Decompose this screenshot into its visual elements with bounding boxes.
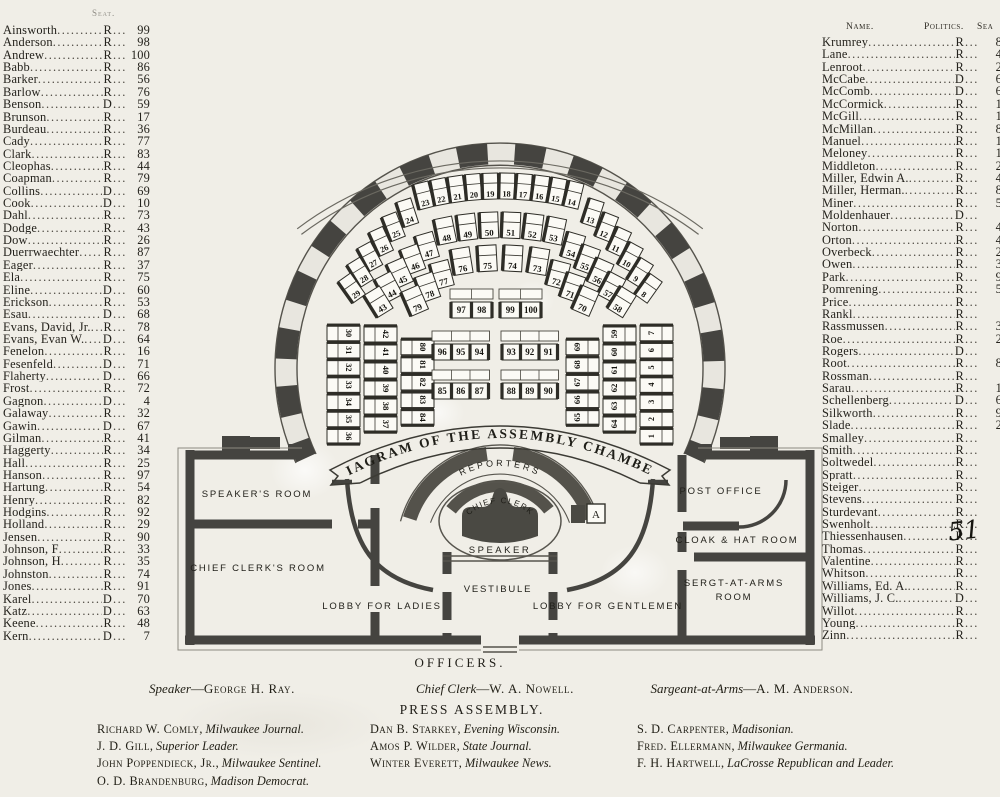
seat-divider [364, 324, 397, 327]
dot-leader [30, 284, 102, 296]
member-row: CadyR77 [3, 135, 150, 147]
member-seat: 91 [126, 580, 150, 592]
seat-divider [401, 338, 434, 341]
member-party: R [955, 246, 965, 258]
dot-leader [965, 333, 978, 345]
member-name: Holland [3, 518, 44, 530]
seat-67: 67 [566, 373, 599, 390]
member-row: ElaR75 [3, 271, 150, 283]
member-seat: 8 [978, 36, 1000, 48]
member-row: DahlR73 [3, 209, 150, 221]
member-row: RootR8 [822, 357, 1000, 369]
room-label-sergt-room-line1: SERGT-AT-ARMS [684, 578, 784, 589]
seat-box [327, 377, 360, 393]
seat-number: 96 [438, 347, 448, 357]
member-row: Williams, Ed. A.R [822, 580, 1000, 592]
member-party: R [955, 357, 965, 369]
member-seat: 3 [978, 258, 1000, 270]
member-name: Park [822, 271, 846, 283]
officer-role: Sargeant-at-Arms [650, 681, 743, 696]
member-name: Anderson [3, 36, 53, 48]
press-name: Richard W. Comly [97, 722, 199, 736]
member-name: Dodge [3, 222, 37, 234]
seat-box [603, 362, 636, 378]
member-row: AndersonR98 [3, 36, 150, 48]
member-row: KatzD63 [3, 605, 150, 617]
dot-leader [872, 246, 955, 258]
member-name: Sarau [822, 382, 851, 394]
member-party: R [955, 333, 965, 345]
dot-leader [31, 197, 102, 209]
member-seat: 48 [126, 617, 150, 629]
dot-leader [885, 320, 955, 332]
seat-divider [450, 344, 453, 360]
member-row: DuerrwaechterR87 [3, 246, 150, 258]
member-party: R [103, 568, 113, 580]
member-name: Root [822, 357, 847, 369]
seat-50: 50 [477, 212, 498, 239]
seat-divider [556, 383, 559, 399]
member-row: ValentineR [822, 555, 1000, 567]
room-label-cloak-hat-room: CLOAK & HAT ROOM [676, 535, 799, 546]
member-seat: 56 [126, 73, 150, 85]
member-row: SoltwedelR [822, 456, 1000, 468]
member-name: Lenroot [822, 61, 863, 73]
seat-84: 84 [401, 408, 434, 427]
dot-leader [40, 185, 102, 197]
member-row: MeloneyR1 [822, 147, 1000, 159]
dot-leader [113, 284, 126, 296]
seat-85: 85 [431, 383, 451, 399]
member-name: Young [822, 617, 856, 629]
dot-leader [965, 493, 978, 505]
member-name: Ainsworth [3, 24, 57, 36]
member-row: GagnonD4 [3, 395, 150, 407]
seat-7: 7 [640, 324, 673, 341]
member-name: McCormick [822, 98, 884, 110]
member-row: SmithR [822, 444, 1000, 456]
dot-leader [28, 234, 103, 246]
member-party: R [103, 469, 113, 481]
member-seat: 54 [126, 481, 150, 493]
press-paper: LaCrosse Republican and Leader. [727, 756, 894, 770]
seat-number: 17 [518, 190, 527, 200]
dot-leader [864, 432, 955, 444]
member-seat: 64 [126, 333, 150, 345]
dot-leader [41, 98, 101, 110]
member-name: Moldenhauer [822, 209, 890, 221]
dot-leader [873, 407, 955, 419]
member-seat: 3 [978, 320, 1000, 332]
dot-leader [868, 36, 954, 48]
dot-leader [61, 555, 103, 567]
member-party: R [955, 320, 965, 332]
dot-leader [25, 457, 102, 469]
officer-name: W. A. Nowell. [489, 681, 574, 696]
member-row: EricksonR53 [3, 296, 150, 308]
dot-leader [870, 85, 954, 97]
dot-leader [113, 234, 126, 246]
member-party: R [103, 172, 113, 184]
member-name: Thomas [822, 543, 863, 555]
seat-37: 37 [364, 414, 397, 433]
member-name: Fenelon [3, 345, 44, 357]
dot-leader [884, 98, 955, 110]
member-row: Evans, David, Jr.R78 [3, 321, 150, 333]
member-party: R [103, 617, 113, 629]
right-header-name: Name. [846, 22, 874, 32]
member-name: Jensen [3, 531, 37, 543]
seat-box [566, 339, 599, 355]
member-party: R [955, 370, 965, 382]
seat-divider [640, 442, 673, 445]
seat-box [364, 326, 397, 342]
seat-34: 34 [327, 392, 360, 409]
seat-number: 22 [436, 194, 446, 204]
seat-32: 32 [327, 358, 360, 375]
member-party: R [955, 629, 965, 641]
dot-leader [856, 617, 955, 629]
dot-leader [965, 345, 978, 357]
member-party: R [103, 148, 113, 160]
member-name: Smalley [822, 432, 864, 444]
member-row: Evans, Evan W.D64 [3, 333, 150, 345]
seat-box [640, 428, 673, 444]
member-party: D [954, 85, 965, 97]
member-name: Sturdevant [822, 506, 878, 518]
seat-box [401, 357, 434, 373]
officer-role: Speaker [149, 681, 191, 696]
press-name: Dan B. Starkey [370, 722, 458, 736]
member-seat: 2 [978, 333, 1000, 345]
seat-69: 69 [566, 338, 599, 355]
member-party: D [102, 284, 113, 296]
member-row: KarelD70 [3, 593, 150, 605]
member-row: PriceR [822, 296, 1000, 308]
dot-leader [113, 123, 126, 135]
seat-number: 64 [609, 419, 619, 428]
member-name: Andrew [3, 49, 44, 61]
dot-leader [965, 617, 978, 629]
right-header-politics: Politics. [924, 22, 964, 32]
left-list-header-partial: Seat. [92, 8, 115, 18]
member-party: R [955, 382, 965, 394]
member-party: R [955, 271, 965, 283]
seat-87: 87 [468, 383, 490, 399]
center-block-row-3: 858687888990 [431, 370, 559, 399]
seat-number: 30 [344, 329, 353, 337]
seat-box [327, 394, 360, 410]
seat-divider [537, 344, 540, 360]
member-party: R [955, 580, 965, 592]
member-row: EsauD68 [3, 308, 150, 320]
member-name: Steiger [822, 481, 859, 493]
seat-number: 4 [647, 383, 656, 387]
member-name: Cook [3, 197, 31, 209]
member-name: Hanson [3, 469, 42, 481]
member-name: Dahl [3, 209, 28, 221]
member-seat: 78 [126, 321, 150, 333]
seat-divider [449, 302, 452, 318]
member-party: D [954, 345, 965, 357]
member-name: Katz [3, 605, 27, 617]
dot-leader [113, 321, 126, 333]
member-seat: 36 [126, 123, 150, 135]
dot-leader [113, 457, 126, 469]
dot-leader [965, 592, 978, 604]
seat-divider [566, 424, 599, 427]
member-row: BabbR86 [3, 61, 150, 73]
member-party: R [955, 234, 965, 246]
member-row: KernD7 [3, 630, 150, 642]
member-name: Overbeck [822, 246, 872, 258]
dot-leader [965, 481, 978, 493]
member-name: Pomrening [822, 283, 878, 295]
seat-box [327, 325, 360, 341]
seat-box [640, 325, 673, 341]
seat-62: 62 [603, 378, 636, 396]
member-party: R [103, 61, 113, 73]
seat-divider [364, 396, 397, 399]
seat-number: 3 [647, 400, 656, 404]
member-row: HansonR97 [3, 469, 150, 481]
member-seat: 90 [126, 531, 150, 543]
member-name: Eline [3, 284, 30, 296]
seat-divider [640, 410, 673, 413]
member-party: R [955, 197, 965, 209]
member-name: Evans, Evan W. [3, 333, 84, 345]
member-name: Thiessenhausen [822, 530, 903, 542]
member-name: Williams, J. C. [822, 592, 899, 604]
room-label-lobby-gentlemen: LOBBY FOR GENTLEMEN [533, 601, 683, 612]
member-row: KrumreyR8 [822, 36, 1000, 48]
dot-leader [878, 283, 954, 295]
seat-30: 30 [327, 324, 360, 341]
dot-leader [113, 185, 126, 197]
member-party: R [103, 246, 113, 258]
dot-leader [113, 98, 126, 110]
seat-number: 75 [483, 261, 493, 271]
marker-a-block [571, 505, 585, 523]
officers-title: OFFICERS. [0, 655, 920, 671]
dot-leader [28, 209, 103, 221]
dot-leader [113, 407, 126, 419]
seat-number: 90 [544, 386, 554, 396]
member-row: Johnson, FR33 [3, 543, 150, 555]
seat-96: 96 [431, 344, 451, 360]
dot-leader [37, 420, 102, 432]
dot-leader [113, 61, 126, 73]
member-row: DodgeR43 [3, 222, 150, 234]
dot-leader [49, 296, 103, 308]
member-party: R [955, 283, 965, 295]
member-row: McMillanR8 [822, 123, 1000, 135]
member-seat: 34 [126, 444, 150, 456]
member-row: BensonD59 [3, 98, 150, 110]
seat-95: 95 [450, 344, 470, 360]
dot-leader [43, 395, 101, 407]
officer-name: A. M. Anderson. [756, 681, 853, 696]
member-seat: 10 [126, 197, 150, 209]
member-row: SmalleyR [822, 432, 1000, 444]
seat-number: 19 [486, 190, 495, 199]
seat-divider [640, 375, 673, 378]
dot-leader [30, 135, 103, 147]
dot-leader [33, 259, 103, 271]
seat-number: 80 [418, 343, 428, 352]
member-party: R [955, 48, 965, 60]
dot-leader [113, 49, 126, 61]
dot-leader [873, 123, 954, 135]
member-row: BarlowR76 [3, 86, 150, 98]
dot-leader [853, 469, 955, 481]
member-party: R [103, 111, 113, 123]
dot-leader [862, 493, 955, 505]
seat-divider [603, 360, 636, 363]
seat-74: 74 [501, 245, 523, 272]
member-name: Soltwedel [822, 456, 873, 468]
member-seat: 76 [126, 86, 150, 98]
member-row: Johnson, HR35 [3, 555, 150, 567]
seat-41: 41 [364, 342, 397, 360]
member-row: RoeR2 [822, 333, 1000, 345]
seat-number: 2 [647, 417, 656, 421]
seat-number: 18 [502, 190, 510, 199]
seat-number: 51 [506, 228, 515, 238]
seat-68: 68 [566, 355, 599, 372]
seat-box [401, 339, 434, 355]
member-name: Ela [3, 271, 20, 283]
dot-leader [113, 531, 126, 543]
dot-leader [965, 85, 978, 97]
seat-number: 65 [572, 412, 582, 421]
seat-box [566, 374, 599, 390]
member-seat: 4 [978, 172, 1000, 184]
dot-leader [113, 420, 126, 432]
dot-leader [846, 271, 955, 283]
dot-leader [51, 444, 103, 456]
seat-number: 67 [572, 377, 582, 386]
member-party: R [955, 605, 965, 617]
member-seat: 4 [126, 395, 150, 407]
member-seat: 87 [126, 246, 150, 258]
member-name: Stevens [822, 493, 862, 505]
member-row: ManuelR1 [822, 135, 1000, 147]
member-row: RassmussenR3 [822, 320, 1000, 332]
member-row: RossmanR [822, 370, 1000, 382]
seat-number: 74 [508, 261, 518, 271]
dot-leader [965, 135, 978, 147]
member-seat: 73 [126, 209, 150, 221]
member-name: Esau [3, 308, 28, 320]
dot-leader [873, 456, 954, 468]
seat-divider [327, 392, 360, 395]
seat-divider [640, 341, 673, 344]
desk-strip [501, 370, 559, 380]
seat-73: 73 [525, 246, 550, 275]
member-row: KeeneR48 [3, 617, 150, 629]
seat-49: 49 [454, 213, 477, 241]
seat-divider [640, 427, 673, 430]
seat-divider [566, 373, 599, 376]
dot-leader [42, 469, 102, 481]
dot-leader [853, 444, 955, 456]
center-block-row-2: 969594939291 [431, 331, 559, 360]
seat-divider [364, 378, 397, 381]
member-name: Burdeau [3, 123, 46, 135]
seat-box [640, 360, 673, 376]
handwritten-annotation: 51 [947, 514, 982, 546]
seat-divider [364, 431, 397, 434]
member-row: EagerR37 [3, 259, 150, 271]
member-row: HodginsR92 [3, 506, 150, 518]
member-party: R [955, 61, 965, 73]
member-name: Slade [822, 419, 851, 431]
dot-leader [113, 135, 126, 147]
member-row: PomreningR5 [822, 283, 1000, 295]
dot-leader [113, 308, 126, 320]
member-name: Clark [3, 148, 32, 160]
seat-42: 42 [364, 324, 397, 342]
seat-box [640, 411, 673, 427]
member-name: Silkworth [822, 407, 873, 419]
member-seat: 6 [978, 85, 1000, 97]
member-seat: 70 [126, 593, 150, 605]
seat-number: 15 [551, 194, 561, 204]
seat-box [566, 392, 599, 408]
seat-box [603, 398, 636, 414]
dot-leader [46, 506, 102, 518]
member-name: Price [822, 296, 848, 308]
member-party: R [103, 86, 113, 98]
member-party: R [103, 160, 113, 172]
dot-leader [113, 246, 126, 258]
dot-leader [37, 531, 102, 543]
member-name: Zinn [822, 629, 846, 641]
member-party: R [103, 555, 113, 567]
dot-leader [32, 148, 103, 160]
dot-leader [35, 494, 103, 506]
dot-leader [853, 308, 955, 320]
member-row: MiddletonR2 [822, 160, 1000, 172]
member-seat: 4 [978, 221, 1000, 233]
dot-leader [871, 555, 955, 567]
dot-leader [870, 518, 954, 530]
member-row: SchellenbergD6 [822, 394, 1000, 406]
seat-17: 17 [513, 173, 532, 200]
dot-leader [878, 506, 955, 518]
member-seat: 67 [126, 420, 150, 432]
seat-box [364, 344, 397, 360]
seat-number: 21 [453, 192, 462, 202]
seat-divider [327, 341, 360, 344]
member-row: HenryR82 [3, 494, 150, 506]
dot-leader [965, 605, 978, 617]
member-party: D [102, 333, 113, 345]
marker-a-letter: A [592, 509, 600, 521]
seat-65: 65 [566, 408, 599, 427]
seat-91: 91 [537, 344, 559, 360]
dot-leader [113, 209, 126, 221]
dot-leader [965, 456, 978, 468]
member-row: Miller, Edwin A.R4 [822, 172, 1000, 184]
member-name: Galaway [3, 407, 48, 419]
member-row: AinsworthR99 [3, 24, 150, 36]
member-party: R [103, 506, 113, 518]
dot-leader [867, 147, 954, 159]
seat-number: 92 [525, 347, 535, 357]
member-row: FlahertyD66 [3, 370, 150, 382]
